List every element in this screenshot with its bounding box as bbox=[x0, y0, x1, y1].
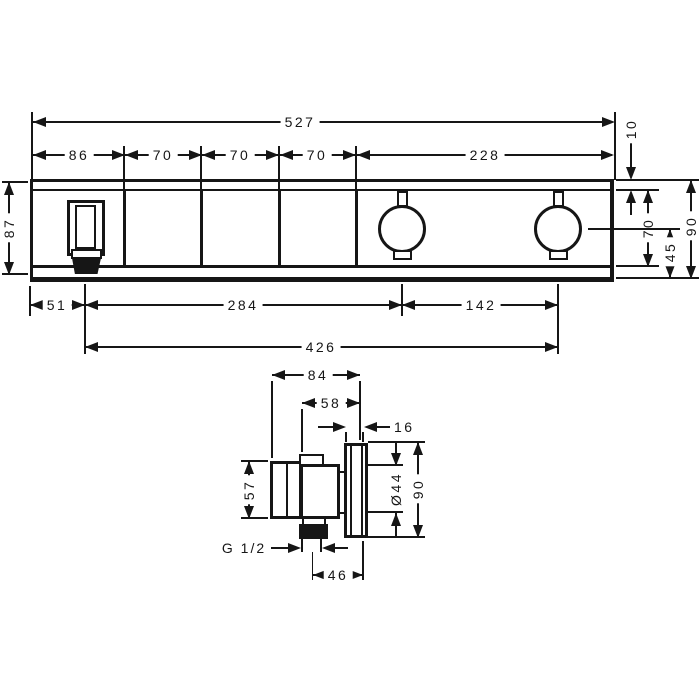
arrowhead bbox=[244, 506, 254, 519]
dim-line bbox=[33, 121, 612, 123]
dim-label: 527 bbox=[281, 114, 320, 130]
arrowhead bbox=[85, 342, 98, 352]
thread-label: G 1/2 bbox=[218, 540, 270, 556]
arrowhead bbox=[333, 422, 346, 432]
arrowhead bbox=[686, 266, 696, 279]
dim-label: 51 bbox=[43, 297, 72, 313]
spout-collar bbox=[71, 249, 102, 259]
arrowhead bbox=[112, 150, 125, 160]
arrowhead bbox=[545, 300, 558, 310]
knob-1-bottom-tab bbox=[393, 250, 412, 260]
side-handle-line bbox=[286, 463, 288, 517]
arrowhead bbox=[391, 453, 401, 466]
side-outlet-block bbox=[299, 524, 328, 539]
section-divider bbox=[278, 191, 281, 265]
arrowhead bbox=[30, 300, 43, 310]
arrowhead bbox=[413, 442, 423, 455]
arrowhead bbox=[347, 398, 360, 408]
dim-label: 10 bbox=[623, 115, 639, 144]
dim-label: Ø44 bbox=[388, 468, 404, 510]
extension-line bbox=[362, 432, 364, 442]
arrowhead bbox=[347, 370, 360, 380]
thermostat-knob-1 bbox=[378, 205, 426, 253]
arrowhead bbox=[391, 513, 401, 526]
dim-line bbox=[630, 140, 632, 168]
dim-label: 46 bbox=[324, 567, 353, 583]
spout-outlet bbox=[72, 258, 101, 274]
dim-label: 16 bbox=[392, 419, 417, 435]
side-valve-body bbox=[300, 464, 340, 519]
arrowhead bbox=[389, 300, 402, 310]
section-divider bbox=[123, 191, 126, 265]
dim-line bbox=[630, 203, 632, 215]
arrowhead bbox=[402, 300, 415, 310]
escutcheon-wall-line bbox=[361, 445, 363, 536]
arrowhead bbox=[33, 150, 46, 160]
extension-line bbox=[301, 409, 303, 452]
thread-pipe-left bbox=[301, 539, 303, 552]
dim-label: 58 bbox=[317, 395, 346, 411]
arrowhead bbox=[125, 150, 138, 160]
dim-line bbox=[377, 426, 390, 428]
side-escutcheon bbox=[344, 443, 368, 538]
section-divider bbox=[355, 191, 358, 265]
extension-line bbox=[345, 432, 347, 442]
arrowhead bbox=[602, 117, 615, 127]
knob-1-top-tab bbox=[397, 191, 408, 207]
arrowhead bbox=[33, 117, 46, 127]
arrowhead bbox=[545, 342, 558, 352]
dim-label: 90 bbox=[410, 475, 426, 504]
section-divider bbox=[200, 191, 203, 265]
spout-handle-inner bbox=[75, 205, 96, 249]
arrowhead bbox=[413, 525, 423, 538]
arrowhead bbox=[4, 262, 14, 275]
extension-line bbox=[271, 381, 273, 458]
dim-label: 284 bbox=[224, 297, 263, 313]
arrowhead bbox=[343, 150, 356, 160]
arrowhead bbox=[4, 182, 14, 195]
arrowhead bbox=[288, 543, 301, 553]
arrowhead bbox=[357, 150, 370, 160]
dim-label: 86 bbox=[65, 147, 94, 163]
arrowhead bbox=[280, 150, 293, 160]
technical-drawing: 527 86 70 70 70 228 bbox=[0, 0, 700, 700]
knob-2-bottom-tab bbox=[549, 250, 568, 260]
arrowhead bbox=[643, 190, 653, 203]
arrowhead bbox=[626, 190, 636, 203]
arrowhead bbox=[322, 543, 335, 553]
dim-label: 70 bbox=[303, 147, 332, 163]
arrowhead bbox=[272, 370, 285, 380]
dim-label: 142 bbox=[462, 297, 501, 313]
dim-label: 228 bbox=[466, 147, 505, 163]
dim-label: 87 bbox=[1, 214, 17, 243]
panel-bottom-inner-line bbox=[33, 265, 611, 268]
dim-label: 57 bbox=[241, 476, 257, 505]
arrowhead bbox=[85, 300, 98, 310]
escutcheon-face-line bbox=[350, 445, 352, 536]
panel-top-inner-line bbox=[33, 189, 611, 191]
arrowhead bbox=[686, 180, 696, 193]
leader-line bbox=[335, 547, 348, 549]
arrowhead bbox=[601, 150, 614, 160]
dim-label: 90 bbox=[683, 212, 699, 241]
arrowhead bbox=[72, 300, 85, 310]
dim-label: 426 bbox=[302, 339, 341, 355]
arrowhead bbox=[189, 150, 202, 160]
arrowhead bbox=[364, 422, 377, 432]
extension-line bbox=[359, 381, 361, 440]
arrowhead bbox=[202, 150, 215, 160]
leader-line bbox=[271, 547, 288, 549]
knob-2-top-tab bbox=[553, 191, 564, 207]
arrowhead bbox=[302, 398, 315, 408]
thermostat-knob-2 bbox=[534, 205, 582, 253]
arrowhead bbox=[643, 254, 653, 267]
dim-label: 45 bbox=[662, 238, 678, 267]
arrowhead bbox=[244, 461, 254, 474]
dim-label: 70 bbox=[149, 147, 178, 163]
dim-line bbox=[318, 426, 333, 428]
dim-label: 84 bbox=[304, 367, 333, 383]
dim-label: 70 bbox=[226, 147, 255, 163]
arrowhead bbox=[266, 150, 279, 160]
